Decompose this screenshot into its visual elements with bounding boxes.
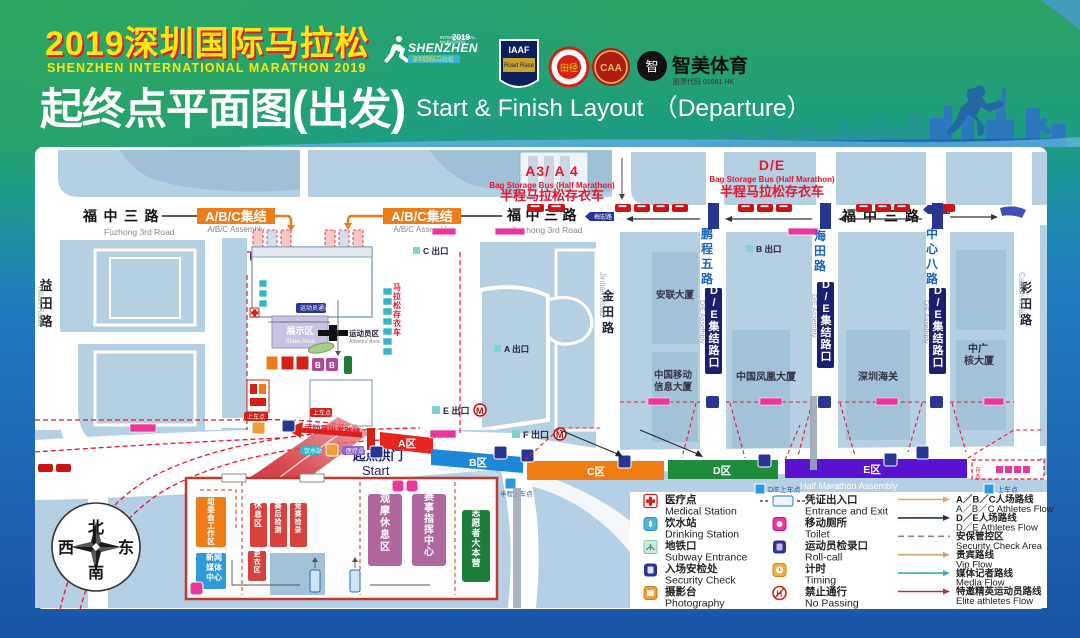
svg-text:海田路: 海田路 [814,228,827,273]
svg-text:新闻: 新闻 [206,552,222,562]
svg-text:中国移动: 中国移动 [654,369,693,381]
svg-text:C 出口: C 出口 [423,246,449,256]
svg-text:No Passing: No Passing [805,598,859,610]
svg-text:A区: A区 [398,438,417,450]
svg-text:观摩休息区: 观摩休息区 [379,493,391,553]
svg-text:Photography: Photography [665,598,725,610]
svg-text:医疗点: 医疗点 [665,493,697,506]
svg-text:安联大厦: 安联大厦 [656,289,695,301]
svg-text:Timing: Timing [805,575,836,587]
svg-text:东: 东 [118,538,134,557]
svg-text:核大厦: 核大厦 [964,354,995,367]
svg-text:Medical Station: Medical Station [665,506,737,518]
svg-text:深圳国际马拉松: 深圳国际马拉松 [412,56,454,64]
svg-text:B 出口: B 出口 [756,244,782,254]
svg-text:医疗点: 医疗点 [346,447,364,455]
svg-text:上车点: 上车点 [247,413,265,421]
svg-text:Entrance and Exit: Entrance and Exit [805,506,888,518]
svg-text:D/E Assembly: D/E Assembly [922,300,929,344]
svg-text:赛后检测: 赛后检测 [274,501,283,534]
svg-text:D区: D区 [713,465,732,477]
svg-text:半程马拉松存衣车: 半程马拉松存衣车 [720,184,824,199]
svg-text:A 出口: A 出口 [504,344,529,354]
svg-text:中心: 中心 [206,572,222,582]
svg-text:Toilet: Toilet [805,529,830,541]
svg-text:南: 南 [88,563,104,582]
svg-text:Show Area: Show Area [285,339,315,345]
svg-text:志愿者大本营: 志愿者大本营 [470,507,481,568]
svg-text:深圳海关: 深圳海关 [858,370,898,383]
svg-text:更衣区: 更衣区 [254,550,262,574]
svg-text:智美体育: 智美体育 [672,54,748,77]
svg-text:Roll-call: Roll-call [805,552,842,564]
svg-text:Athletes' Area: Athletes' Area [349,339,380,345]
svg-text:D/E上车点: D/E上车点 [768,485,801,494]
svg-text:梅宏路: 梅宏路 [594,213,612,221]
svg-text:竞赛检录: 竞赛检录 [294,501,303,534]
svg-text:中国凤凰大厦: 中国凤凰大厦 [736,370,797,383]
svg-text:凭证出入口: 凭证出入口 [804,493,858,506]
svg-text:智: 智 [645,59,658,74]
svg-text:休息区: 休息区 [253,500,263,528]
svg-text:D/E Assembly: D/E Assembly [810,294,817,338]
svg-text:展示区: 展示区 [286,326,313,336]
svg-text:Bag Storage Bus (Half Marathon: Bag Storage Bus (Half Marathon) [709,175,835,184]
svg-text:赛事指挥中心: 赛事指挥中心 [423,490,435,558]
svg-text:存衣: 存衣 [975,466,981,481]
svg-text:2019深圳国际马拉松: 2019深圳国际马拉松 [45,25,370,63]
svg-text:Security Check: Security Check [665,575,736,587]
svg-text:计时: 计时 [805,562,826,575]
svg-text:A/B/C集结: A/B/C集结 [205,209,266,224]
svg-text:上车点: 上车点 [313,409,331,417]
svg-text:D/E Assembly: D/E Assembly [698,300,705,344]
svg-text:Road Race: Road Race [504,63,535,69]
svg-text:A3/ A 4: A3/ A 4 [525,163,578,179]
svg-text:地铁口: 地铁口 [665,539,697,552]
svg-text:上车点: 上车点 [997,485,1018,494]
svg-text:股票代码 01661.HK: 股票代码 01661.HK [673,77,734,86]
svg-text:Half Marathon Assembly: Half Marathon Assembly [800,481,898,491]
svg-text:B: B [315,361,321,370]
svg-text:信息大厦: 信息大厦 [654,381,693,393]
svg-text:E 出口: E 出口 [443,405,470,416]
svg-text:IAAF: IAAF [509,45,530,55]
svg-text:移动厕所: 移动厕所 [805,516,847,529]
svg-text:Jintian Road: Jintian Road [598,272,607,316]
svg-text:媒体: 媒体 [205,562,223,572]
svg-text:禁止通行: 禁止通行 [804,585,847,598]
svg-text:运动员检录口: 运动员检录口 [805,539,868,552]
svg-text:Yitian Road: Yitian Road [36,285,45,326]
svg-text:E区: E区 [863,464,881,476]
svg-text:西: 西 [58,539,74,557]
svg-text:马拉松存衣车: 马拉松存衣车 [392,283,401,337]
svg-text:B区: B区 [469,457,488,469]
svg-text:MARATHON: MARATHON [440,40,465,45]
svg-text:Caitian Road: Caitian Road [1017,272,1026,318]
svg-text:中广: 中广 [968,342,988,355]
svg-text:D/E: D/E [759,157,785,173]
svg-text:Start: Start [362,463,390,478]
svg-text:半程马拉松存衣车: 半程马拉松存衣车 [500,188,604,203]
svg-text:B: B [329,361,335,370]
svg-text:Start & Finish Layout （Departu: Start & Finish Layout （Departure） [416,94,811,122]
svg-text:入场安检处: 入场安检处 [665,562,718,575]
svg-text:Subway Entrance: Subway Entrance [665,552,747,564]
svg-text:饮水站: 饮水站 [664,516,697,529]
svg-text:福中三路: 福中三路 [82,208,165,224]
svg-text:SHENZHEN INTERNATIONAL MARATHO: SHENZHEN INTERNATIONAL MARATHON 2019 [47,61,366,75]
svg-text:Elite athletes Flow: Elite athletes Flow [956,596,1033,607]
svg-text:运动员区: 运动员区 [349,328,379,338]
svg-text:摄影台: 摄影台 [665,585,697,598]
svg-text:北: 北 [88,519,104,537]
svg-text:运动员通道: 运动员通道 [300,304,330,312]
svg-text:M: M [476,406,484,416]
svg-text:起终点平面图(出发): 起终点平面图(出发) [40,81,405,134]
svg-text:饮水站: 饮水站 [304,447,322,455]
svg-text:A/B/C集结: A/B/C集结 [391,209,452,224]
svg-text:Drinking Station: Drinking Station [665,529,739,541]
svg-text:田径: 田径 [560,62,578,73]
svg-text:组委会工作区: 组委会工作区 [206,496,215,546]
svg-text:C区: C区 [587,466,606,478]
svg-text:CAA: CAA [600,63,622,74]
svg-text:F 出口: F 出口 [523,429,549,440]
svg-text:Fuzhong 3rd Road: Fuzhong 3rd Road [104,227,175,237]
